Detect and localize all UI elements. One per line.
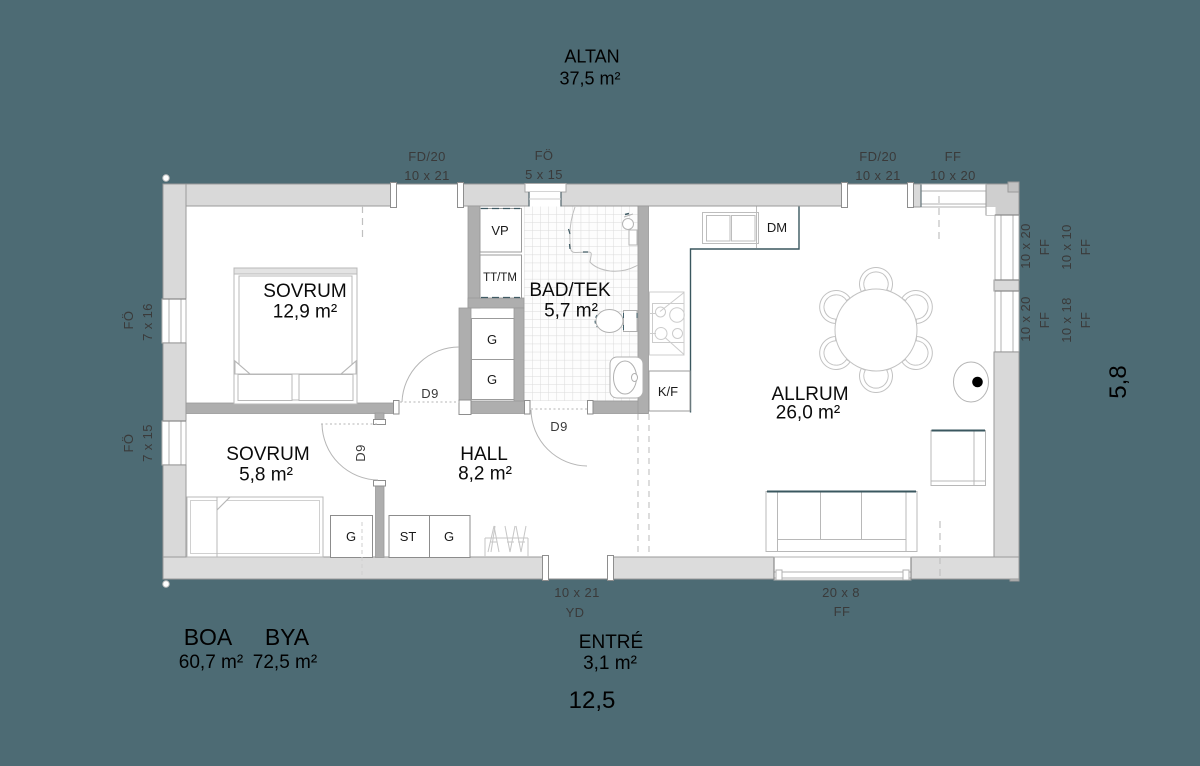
svg-text:D9: D9 bbox=[550, 419, 567, 434]
svg-text:5,8 m²: 5,8 m² bbox=[239, 465, 293, 486]
svg-text:3,1 m²: 3,1 m² bbox=[583, 653, 637, 674]
svg-text:10 x 21: 10 x 21 bbox=[855, 168, 900, 183]
svg-text:10 x 20: 10 x 20 bbox=[1018, 223, 1033, 268]
svg-text:G: G bbox=[346, 529, 356, 544]
svg-text:G: G bbox=[487, 372, 497, 387]
svg-text:FF: FF bbox=[1037, 312, 1052, 329]
svg-text:D9: D9 bbox=[353, 444, 368, 461]
svg-text:K/F: K/F bbox=[658, 384, 678, 399]
svg-text:FF: FF bbox=[1078, 239, 1093, 256]
svg-text:FF: FF bbox=[1037, 239, 1052, 256]
svg-text:FF: FF bbox=[1078, 312, 1093, 329]
svg-text:ALTAN: ALTAN bbox=[564, 47, 619, 67]
svg-text:10 x 21: 10 x 21 bbox=[404, 168, 449, 183]
svg-text:72,5 m²: 72,5 m² bbox=[253, 652, 317, 673]
svg-text:5,8: 5,8 bbox=[1105, 365, 1132, 398]
svg-text:7 x 16: 7 x 16 bbox=[140, 303, 155, 341]
svg-text:BOA: BOA bbox=[184, 624, 233, 650]
svg-text:10 x 20: 10 x 20 bbox=[930, 168, 975, 183]
svg-text:FD/20: FD/20 bbox=[859, 149, 896, 164]
svg-text:10 x 21: 10 x 21 bbox=[554, 585, 599, 600]
svg-text:10 x 10: 10 x 10 bbox=[1059, 224, 1074, 269]
svg-text:10 x 18: 10 x 18 bbox=[1059, 297, 1074, 342]
svg-text:FF: FF bbox=[834, 604, 851, 619]
svg-text:DM: DM bbox=[767, 220, 787, 235]
svg-text:G: G bbox=[487, 332, 497, 347]
svg-text:HALL: HALL bbox=[460, 444, 508, 465]
svg-text:7 x 15: 7 x 15 bbox=[140, 424, 155, 462]
svg-text:10 x 20: 10 x 20 bbox=[1018, 296, 1033, 341]
svg-text:12,5: 12,5 bbox=[569, 687, 616, 714]
svg-text:D9: D9 bbox=[421, 386, 438, 401]
svg-text:ENTRÉ: ENTRÉ bbox=[579, 632, 643, 653]
svg-text:5 x 15: 5 x 15 bbox=[525, 167, 563, 182]
svg-text:FÖ: FÖ bbox=[121, 311, 136, 330]
svg-text:FÖ: FÖ bbox=[121, 434, 136, 453]
svg-text:20 x 8: 20 x 8 bbox=[822, 585, 860, 600]
svg-text:G: G bbox=[444, 529, 454, 544]
svg-text:SOVRUM: SOVRUM bbox=[226, 444, 309, 465]
svg-text:26,0 m²: 26,0 m² bbox=[776, 403, 840, 424]
svg-text:VP: VP bbox=[491, 223, 508, 238]
svg-text:FF: FF bbox=[945, 149, 962, 164]
svg-text:BAD/TEK: BAD/TEK bbox=[529, 280, 611, 301]
svg-text:5,7 m²: 5,7 m² bbox=[544, 301, 598, 322]
svg-text:37,5 m²: 37,5 m² bbox=[559, 69, 620, 89]
svg-text:60,7 m²: 60,7 m² bbox=[179, 652, 243, 673]
svg-text:FD/20: FD/20 bbox=[408, 149, 445, 164]
svg-text:FÖ: FÖ bbox=[535, 148, 554, 163]
svg-text:YD: YD bbox=[566, 605, 585, 620]
svg-text:12,9 m²: 12,9 m² bbox=[273, 302, 337, 323]
svg-text:TT/TM: TT/TM bbox=[483, 272, 517, 284]
svg-text:BYA: BYA bbox=[265, 624, 310, 650]
svg-text:8,2 m²: 8,2 m² bbox=[458, 464, 512, 485]
svg-text:SOVRUM: SOVRUM bbox=[263, 281, 346, 302]
svg-text:ST: ST bbox=[400, 529, 417, 544]
